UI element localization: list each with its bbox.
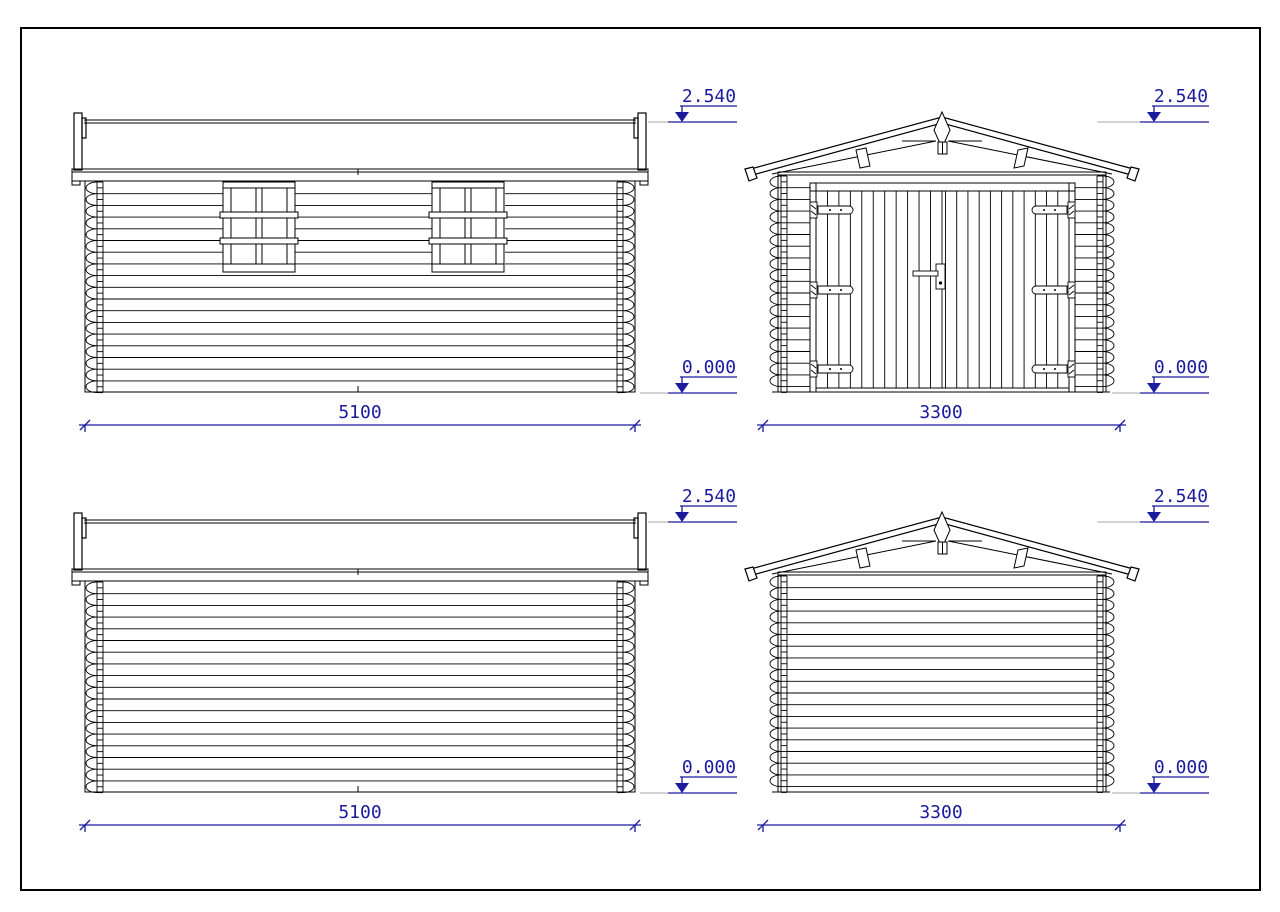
- garage-door: [810, 183, 1075, 392]
- log-ends-left: [770, 176, 781, 387]
- log-ends-right: [623, 182, 634, 393]
- log-end-ticks-right: [617, 182, 623, 393]
- bargeboard-right: [634, 113, 646, 170]
- dimension-side-bottom: 5100: [79, 802, 641, 832]
- log-ends-right: [1103, 176, 1114, 387]
- bargeboard-left: [74, 113, 86, 170]
- level-label: 2.540: [682, 486, 736, 507]
- rear-elevation: [745, 512, 1139, 792]
- log-end-column-left: [781, 176, 787, 392]
- dimension-front: 3300: [757, 402, 1126, 432]
- level-label: 2.540: [1154, 486, 1208, 507]
- sheet-border: [21, 28, 1260, 890]
- log-end-ticks-left: [97, 182, 103, 393]
- log-courses-rear: [787, 588, 1097, 787]
- window-left: [220, 182, 298, 272]
- dimension-label: 5100: [338, 802, 381, 823]
- roof-slab: [84, 120, 636, 123]
- log-courses-front-left: [787, 188, 810, 387]
- log-end-ticks-left: [781, 176, 787, 392]
- level-label: 0.000: [1154, 757, 1208, 778]
- dimension-label: 3300: [919, 402, 962, 423]
- level-label: 2.540: [1154, 86, 1208, 107]
- dimension-rear: 3300: [757, 802, 1126, 832]
- log-ends-left: [86, 182, 97, 393]
- level-label: 2.540: [682, 86, 736, 107]
- side-elevation-plain: [72, 513, 648, 793]
- window-right: [429, 182, 507, 272]
- side-elevation-shell: [72, 113, 648, 393]
- log-end-column-right: [1097, 176, 1103, 392]
- technical-drawing-canvas: 5100 3300 5100 3300 2.540 0.000 2.540 0.…: [0, 0, 1280, 912]
- dimension-label: 3300: [919, 802, 962, 823]
- level-label: 0.000: [682, 757, 736, 778]
- level-label: 0.000: [1154, 357, 1208, 378]
- log-courses-side-top: [103, 194, 617, 381]
- wall-outline: [85, 181, 635, 392]
- log-courses-side-bottom: [103, 594, 617, 781]
- dimension-label: 5100: [338, 402, 381, 423]
- dimension-side-top: 5100: [79, 402, 641, 432]
- log-end-ticks-right: [1097, 176, 1103, 392]
- log-courses-front-right: [1075, 188, 1097, 387]
- level-label: 0.000: [682, 357, 736, 378]
- eaves-band: [72, 169, 648, 185]
